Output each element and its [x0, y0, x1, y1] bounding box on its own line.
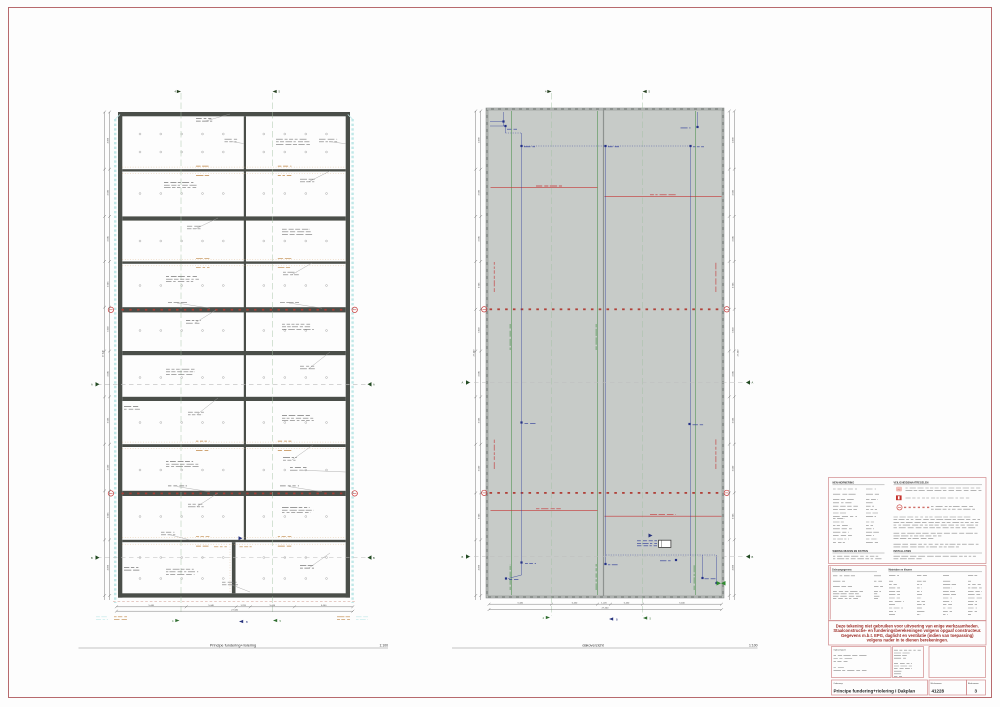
- svg-text:volgens nader in te dienen ber: volgens nader in te dienen berekeningen.: [867, 637, 948, 642]
- svg-text:3.040: 3.040: [108, 464, 110, 470]
- svg-text:27.440: 27.440: [474, 349, 476, 356]
- svg-text:3.045: 3.045: [108, 512, 110, 518]
- svg-text:5.440: 5.440: [208, 605, 214, 607]
- svg-text:3.045: 3.045: [479, 370, 481, 376]
- svg-text:3.045: 3.045: [108, 235, 110, 241]
- svg-text:3.045: 3.045: [732, 513, 734, 519]
- svg-text:B: B: [373, 556, 375, 560]
- svg-text:Onderwerp: Onderwerp: [834, 682, 843, 685]
- svg-text:4.990: 4.990: [108, 137, 110, 143]
- svg-text:dakoverzicht: dakoverzicht: [582, 643, 604, 647]
- svg-text:A: A: [752, 381, 754, 385]
- svg-text:Bladnummer: Bladnummer: [968, 682, 979, 685]
- svg-text:27.440: 27.440: [602, 608, 609, 610]
- svg-text:5.440: 5.440: [624, 602, 630, 604]
- svg-text:4.990: 4.990: [479, 564, 481, 570]
- svg-text:5.440: 5.440: [321, 605, 327, 607]
- svg-text:Gebouwgegevens: Gebouwgegevens: [832, 570, 852, 572]
- svg-text:B: B: [752, 555, 754, 559]
- svg-text:3.040: 3.040: [479, 189, 481, 195]
- svg-text:Materialen en kleuren: Materialen en kleuren: [889, 569, 913, 572]
- svg-text:A: A: [373, 383, 375, 387]
- svg-text:3.040: 3.040: [108, 326, 110, 332]
- svg-text:Principe fundering+riolering I: Principe fundering+riolering I Dakplan: [834, 688, 916, 693]
- svg-text:A: A: [462, 381, 464, 385]
- svg-text:VEILIGHEIDSMAATREGELEN: VEILIGHEIDSMAATREGELEN: [894, 482, 929, 485]
- svg-text:3.045: 3.045: [479, 235, 481, 241]
- svg-text:B: B: [616, 618, 618, 622]
- svg-text:1:100: 1:100: [380, 643, 389, 647]
- svg-text:Werknummer: Werknummer: [931, 682, 943, 685]
- svg-text:5.440: 5.440: [270, 605, 276, 607]
- svg-text:3.045: 3.045: [108, 370, 110, 376]
- svg-text:27.440: 27.440: [737, 349, 739, 356]
- svg-text:B: B: [462, 555, 464, 559]
- svg-text:5.440: 5.440: [518, 602, 524, 604]
- svg-text:B: B: [246, 620, 248, 624]
- svg-text:3.045: 3.045: [732, 282, 734, 288]
- svg-text:1.220: 1.220: [601, 602, 607, 604]
- svg-text:3.045: 3.045: [479, 417, 481, 423]
- svg-text:3.045: 3.045: [108, 417, 110, 423]
- svg-text:27.440: 27.440: [231, 609, 238, 611]
- svg-text:5.440: 5.440: [149, 605, 155, 607]
- svg-text:3.040: 3.040: [732, 465, 734, 471]
- svg-text:4.990: 4.990: [732, 137, 734, 143]
- svg-text:4.990: 4.990: [108, 564, 110, 570]
- svg-text:5.440: 5.440: [572, 602, 578, 604]
- svg-text:3.040: 3.040: [479, 327, 481, 333]
- svg-text:B: B: [91, 556, 93, 560]
- svg-text:41228: 41228: [932, 688, 945, 693]
- svg-text:5.440: 5.440: [679, 602, 685, 604]
- svg-text:3.045: 3.045: [732, 417, 734, 423]
- svg-text:3.040: 3.040: [732, 327, 734, 333]
- svg-text:3.040: 3.040: [108, 189, 110, 195]
- svg-text:4.990: 4.990: [732, 564, 734, 570]
- svg-text:Principe fundering+riolering: Principe fundering+riolering: [210, 643, 256, 647]
- svg-text:1.220: 1.220: [240, 605, 246, 607]
- svg-text:NEN-NORMERING: NEN-NORMERING: [833, 482, 855, 485]
- svg-text:3.045: 3.045: [479, 282, 481, 288]
- svg-text:1:100: 1:100: [749, 643, 758, 647]
- svg-text:27.440: 27.440: [103, 350, 105, 357]
- svg-text:WERING MUIZEN EN RATTEN: WERING MUIZEN EN RATTEN: [833, 550, 869, 553]
- svg-text:3.040: 3.040: [732, 189, 734, 195]
- svg-text:A: A: [91, 383, 93, 387]
- svg-text:INSTALLATIES: INSTALLATIES: [894, 550, 912, 553]
- svg-text:3.040: 3.040: [479, 465, 481, 471]
- svg-text:3.045: 3.045: [732, 370, 734, 376]
- svg-text:4.990: 4.990: [479, 137, 481, 143]
- svg-text:3.045: 3.045: [732, 235, 734, 241]
- svg-text:3.045: 3.045: [479, 513, 481, 519]
- svg-text:Opdrachtgever: Opdrachtgever: [834, 649, 847, 652]
- svg-text:3.045: 3.045: [108, 281, 110, 287]
